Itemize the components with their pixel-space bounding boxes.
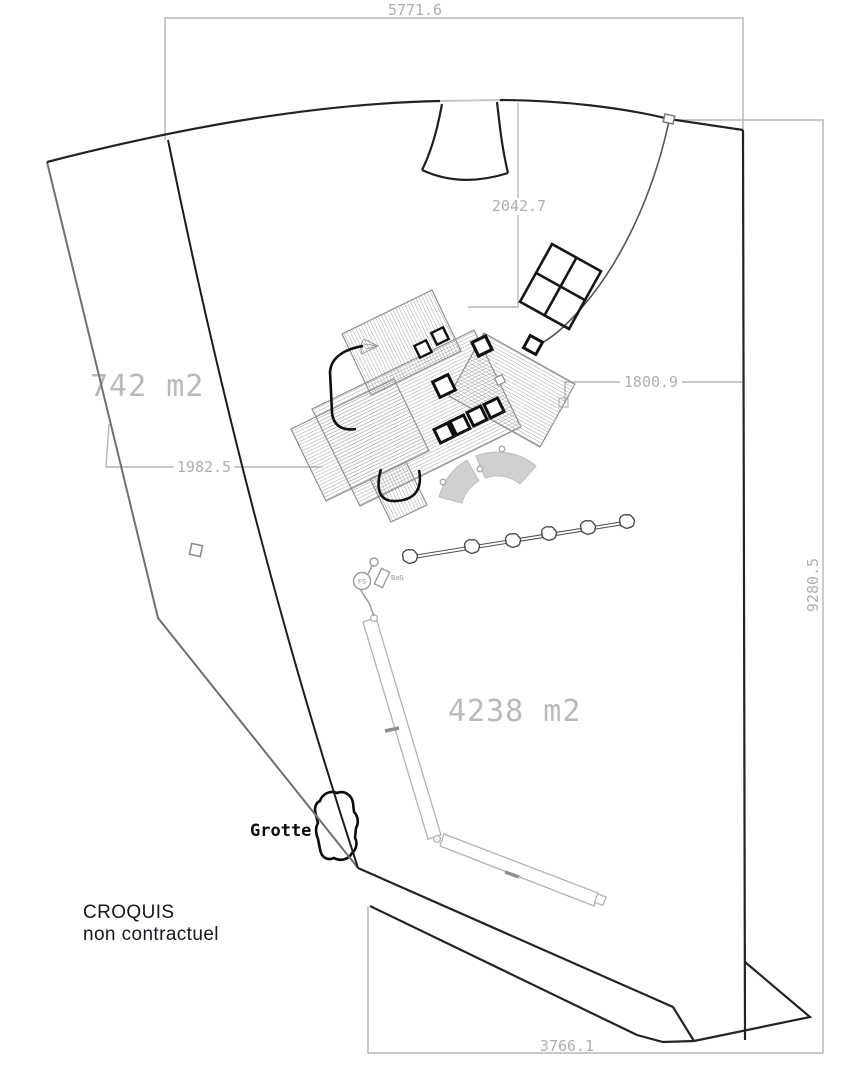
dim-top-value: 5771.6 [388, 1, 442, 19]
dimension-lines [106, 18, 823, 1053]
boundary-west [47, 162, 358, 868]
dim-right-value: 9280.5 [804, 558, 822, 612]
fence-curve [534, 121, 669, 347]
grotto-label: Grotte [250, 821, 311, 841]
dim-right-line [671, 120, 823, 1053]
note-line2: non contractuel [83, 924, 219, 945]
parcel-division-line [168, 140, 358, 868]
boundary-south-inner [370, 906, 694, 1042]
dim-bottom-line [368, 906, 823, 1053]
dim-access-value: 2042.7 [492, 197, 546, 215]
hedge-row [403, 515, 635, 564]
wall-strip-joint-node [434, 836, 441, 843]
dim-bottom-value: 3766.1 [540, 1037, 594, 1055]
shrub-symbol [506, 534, 521, 548]
wall-strip-long [363, 618, 441, 839]
driveway-mouth [440, 100, 500, 101]
utility-symbols [354, 558, 390, 616]
utility-label: BaG [391, 574, 404, 582]
note-line1: CROQUIS [83, 902, 174, 923]
boundary-north-east [500, 100, 743, 130]
boundary-south-outer [358, 868, 694, 1041]
shrub-symbol [581, 521, 596, 535]
driveway-funnel [422, 102, 508, 180]
wall-strip-lower [440, 834, 598, 906]
boundary-triangle [694, 962, 810, 1041]
boundary-east [743, 130, 745, 1040]
shrub-symbol [403, 550, 418, 564]
manhole-label: FS [358, 578, 366, 586]
shrub-symbol [620, 515, 635, 529]
boundary-north [47, 101, 440, 162]
dim-top-line [165, 18, 743, 140]
survey-point-marker [189, 543, 202, 556]
dim-east-value: 1800.9 [624, 373, 678, 391]
shrub-symbol [465, 540, 480, 554]
site-plan-drawing: 5771.6 9280.5 3766.1 2042.7 1800.9 1982.… [0, 0, 846, 1080]
utility-box [374, 568, 389, 587]
area-left-parcel: 742 m2 [90, 369, 204, 404]
shrub-symbol [542, 527, 557, 541]
glazed-structure [520, 244, 601, 329]
area-main-parcel: 4238 m2 [448, 694, 581, 729]
house-building [291, 290, 575, 522]
dim-west-value: 1982.5 [177, 458, 231, 476]
wall-strips [363, 615, 606, 906]
croquis-page: 5771.6 9280.5 3766.1 2042.7 1800.9 1982.… [0, 0, 846, 1080]
property-boundary [47, 100, 810, 1042]
utility-small-node [370, 558, 378, 566]
boundary-marker [663, 114, 674, 124]
